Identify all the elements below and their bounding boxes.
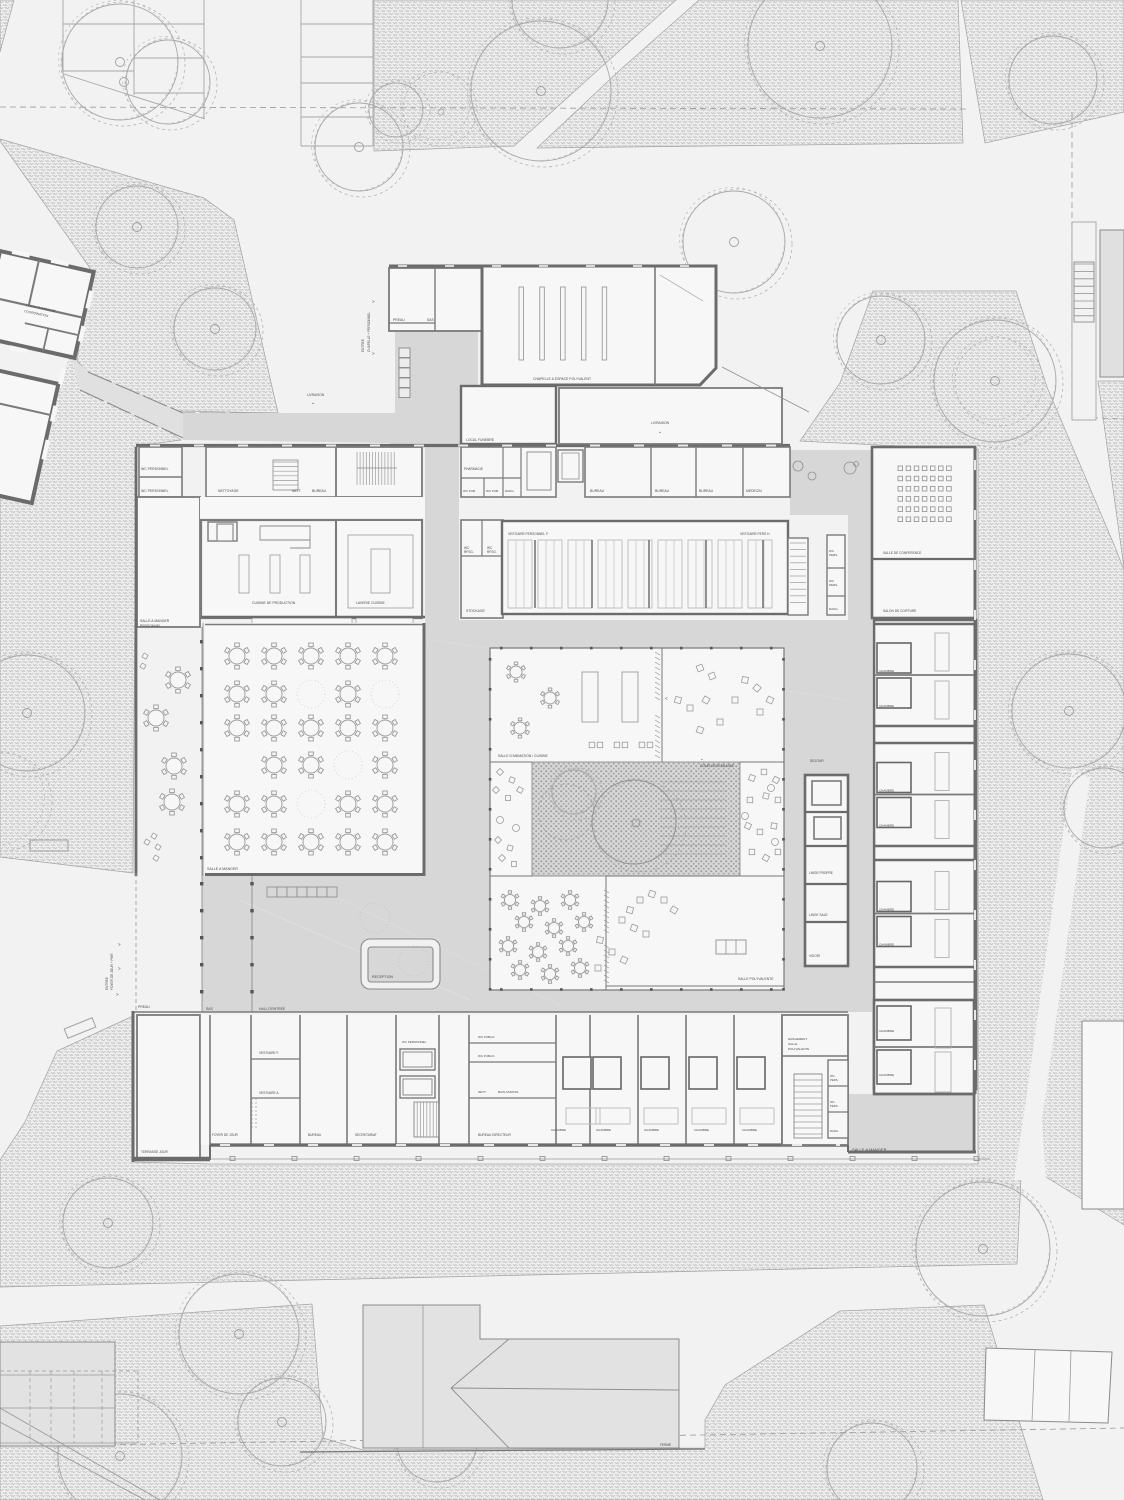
svg-text:BUREAU: BUREAU: [308, 1133, 322, 1137]
svg-text:RANGEMENT: RANGEMENT: [788, 1037, 807, 1041]
svg-text:SALLE A MANGER: SALLE A MANGER: [207, 867, 238, 871]
svg-text:CUISINE DE PRODUCTION: CUISINE DE PRODUCTION: [252, 601, 296, 605]
svg-text:VESTIAIRE F.: VESTIAIRE F.: [259, 1051, 279, 1055]
svg-text:<: <: [665, 696, 668, 701]
svg-text:WC PUBLIC: WC PUBLIC: [478, 1054, 496, 1058]
svg-text:RANG.: RANG.: [830, 1129, 839, 1133]
svg-text:CHAMBRE: CHAMBRE: [879, 824, 894, 828]
svg-text:PERS.: PERS.: [829, 583, 838, 587]
svg-text:CHAMBRE: CHAMBRE: [879, 908, 894, 912]
svg-text:WC PUBLIC: WC PUBLIC: [478, 1035, 496, 1039]
svg-text:>: >: [118, 966, 121, 971]
svg-text:PHARMACIE: PHARMACIE: [464, 467, 483, 471]
svg-text:SALLE D'ANIMATION / CUISINE: SALLE D'ANIMATION / CUISINE: [498, 754, 548, 758]
svg-text:CHAMBRE: CHAMBRE: [879, 789, 894, 793]
svg-text:LIVRAISON: LIVRAISON: [651, 421, 670, 425]
svg-text:CHAMBRE: CHAMBRE: [879, 1073, 894, 1077]
svg-text:RANG.: RANG.: [505, 489, 515, 493]
svg-text:PERS.: PERS.: [830, 1104, 839, 1108]
svg-text:PREAU: PREAU: [393, 318, 405, 322]
svg-text:LINGE SALE: LINGE SALE: [809, 913, 828, 917]
svg-text:LOCAL FUNEBRE: LOCAL FUNEBRE: [466, 438, 495, 442]
svg-text:CHAMBRE: CHAMBRE: [879, 943, 894, 947]
svg-text:PERS.: PERS.: [829, 553, 838, 557]
svg-text:BUREAU DIRECTEUR: BUREAU DIRECTEUR: [478, 1133, 511, 1137]
svg-text:LAVERIE CUISINE: LAVERIE CUISINE: [356, 601, 386, 605]
svg-text:VESTIAIRE PERSONNEL F.: VESTIAIRE PERSONNEL F.: [508, 532, 549, 536]
svg-text:BUREAU: BUREAU: [699, 489, 714, 493]
svg-text:PERSONNEL: PERSONNEL: [140, 624, 161, 628]
svg-text:VIDOIR: VIDOIR: [809, 954, 821, 958]
svg-text:CHAMBRE: CHAMBRE: [879, 669, 894, 673]
svg-text:BUREAU: BUREAU: [312, 489, 327, 493]
svg-text:SALLE POLYVALENTE: SALLE POLYVALENTE: [738, 977, 774, 981]
svg-text:SAS: SAS: [206, 1007, 214, 1011]
svg-text:>: >: [372, 351, 375, 356]
svg-text:SALLE DE CONFERENCE: SALLE DE CONFERENCE: [883, 551, 921, 555]
svg-text:CHAMBRE: CHAMBRE: [742, 1128, 757, 1132]
svg-text:BUREAU: BUREAU: [655, 489, 670, 493]
svg-text:WC PERSONNEL: WC PERSONNEL: [141, 489, 169, 493]
svg-text:VESTIAIRE PERS H.: VESTIAIRE PERS H.: [740, 532, 770, 536]
svg-text:CHAMBRE: CHAMBRE: [551, 1128, 566, 1132]
svg-text:LINGE PROPRE: LINGE PROPRE: [809, 871, 833, 875]
svg-text:WC PERSONNEL: WC PERSONNEL: [141, 467, 169, 471]
svg-text:LIVRAISON: LIVRAISON: [307, 393, 325, 397]
svg-text:VESTIAIRE A.: VESTIAIRE A.: [259, 1091, 279, 1095]
svg-text:ENTREE: ENTREE: [361, 339, 365, 352]
svg-text:SAS: SAS: [427, 318, 435, 322]
svg-text:PERS.: PERS.: [830, 1078, 839, 1082]
svg-text:BAIN ASSISTE: BAIN ASSISTE: [498, 1090, 518, 1094]
svg-text:ENTREE: ENTREE: [105, 977, 109, 990]
svg-text:NETTOYAGE: NETTOYAGE: [218, 489, 239, 493]
svg-text:NETT.: NETT.: [292, 489, 301, 493]
svg-text:HALL D'ENTREE: HALL D'ENTREE: [259, 1007, 286, 1011]
svg-text:CHAMBRE: CHAMBRE: [879, 1029, 894, 1033]
svg-text:FERME: FERME: [660, 1443, 671, 1447]
svg-text:WC PERSONNEL: WC PERSONNEL: [402, 1040, 427, 1044]
svg-text:SALLE: SALLE: [788, 1042, 797, 1046]
svg-text:PREAU: PREAU: [138, 1005, 150, 1009]
svg-text:RFSG.: RFSG.: [464, 550, 474, 554]
svg-text:CHAPELLE & ESPACE POLYVALENT: CHAPELLE & ESPACE POLYVALENT: [533, 377, 591, 381]
svg-text:⌄: ⌄: [700, 756, 704, 761]
svg-text:RECEPTION: RECEPTION: [372, 975, 393, 979]
svg-text:SECRETARIAT: SECRETARIAT: [355, 1133, 377, 1137]
svg-text:RANG.: RANG.: [829, 607, 839, 611]
svg-text:STOCKAGE: STOCKAGE: [466, 609, 486, 613]
svg-text:FOYER DE JOUR: FOYER DE JOUR: [212, 1133, 239, 1137]
svg-text:NETT.: NETT.: [478, 1090, 487, 1094]
svg-text:SALLE A MANGER: SALLE A MANGER: [140, 619, 170, 623]
svg-text:>: >: [116, 992, 119, 997]
svg-text:COUR VEGETALISEE: COUR VEGETALISEE: [700, 764, 735, 768]
svg-text:MEDECIN: MEDECIN: [746, 489, 762, 493]
svg-text:SALON DE COIFFURE: SALON DE COIFFURE: [883, 609, 916, 613]
svg-text:WC PUB.: WC PUB.: [486, 489, 499, 493]
svg-text:CHAMBRE: CHAMBRE: [596, 1128, 611, 1132]
svg-text:CHAMBRE: CHAMBRE: [694, 1128, 709, 1132]
svg-text:CHAMBRE: CHAMBRE: [879, 704, 894, 708]
svg-text:SEJOUR: SEJOUR: [810, 759, 824, 763]
svg-text:⌄: ⌄: [658, 429, 662, 435]
svg-text:RFSG.: RFSG.: [487, 550, 497, 554]
svg-text:>: >: [372, 299, 375, 304]
svg-text:CHAMBRE: CHAMBRE: [644, 1128, 659, 1132]
svg-text:CHAPELLE + PERSONNEL: CHAPELLE + PERSONNEL: [367, 312, 371, 352]
svg-text:WC PUB.: WC PUB.: [463, 489, 476, 493]
svg-text:>: >: [118, 942, 121, 947]
svg-text:BUREAU: BUREAU: [590, 489, 605, 493]
svg-text:POLYVALENTE: POLYVALENTE: [788, 1047, 809, 1051]
svg-text:FOYER DE JOUR + PMR: FOYER DE JOUR + PMR: [110, 953, 114, 990]
svg-text:TERRASSE JOUR: TERRASSE JOUR: [141, 1150, 168, 1154]
svg-text:⌄: ⌄: [311, 400, 315, 406]
